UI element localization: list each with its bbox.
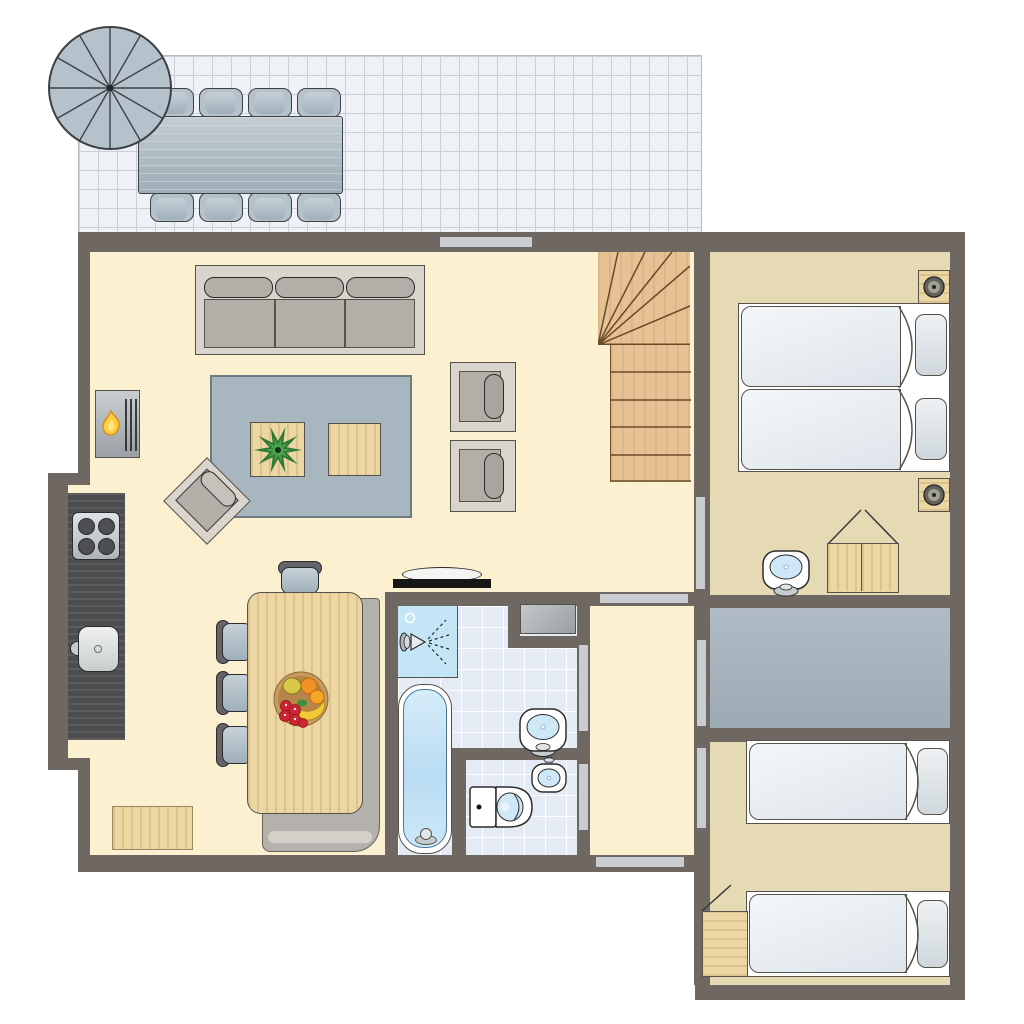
sink-drain: [94, 645, 102, 653]
door-hall-exterior: [596, 857, 684, 867]
wardrobe: [827, 543, 899, 593]
door-hall-to-toilet: [579, 764, 588, 830]
stairs-tread-lines: [611, 345, 691, 482]
washing-machine: [520, 604, 576, 634]
sofa-back-cushion: [275, 277, 344, 298]
toilet: [468, 781, 536, 833]
sofa: [195, 265, 425, 355]
bedroom-1-washbasin: [760, 549, 812, 597]
wardrobe-door: [828, 544, 862, 591]
side-table: [328, 423, 381, 476]
bedroom-2-cabinet: [702, 911, 748, 977]
shower-head-icon: [398, 606, 456, 676]
fireplace-vent-line: [130, 399, 132, 451]
utility-room-floor: [710, 608, 950, 728]
wall-bathroom-left: [385, 592, 398, 872]
single-bed: [746, 740, 950, 824]
wall-bedroom1-bottom: [695, 595, 950, 608]
dining-chair: [199, 88, 243, 118]
chair-seat: [303, 198, 334, 220]
plant: [253, 425, 303, 475]
sofa-back-cushion: [346, 277, 415, 298]
fireplace: [95, 390, 140, 458]
dining-chair: [248, 192, 292, 222]
wall-bump-bottom: [48, 758, 90, 770]
stairs-winder-section: [598, 252, 690, 345]
chair-seat: [303, 92, 334, 114]
stairs-straight-section: [610, 345, 690, 482]
chair-seat: [205, 92, 236, 114]
dining-chair: [199, 192, 243, 222]
dining-chair: [248, 88, 292, 118]
door-hall-to-bathroom: [579, 645, 588, 731]
duvet-fold-line: [747, 741, 951, 825]
door-hall-to-bedroom-2: [697, 748, 706, 828]
sofa-seat-divider: [274, 299, 276, 348]
door-hall-top: [600, 594, 688, 603]
wall-washer-niche-horizontal: [508, 636, 590, 648]
door-hall-to-utility: [697, 640, 706, 726]
sofa-back-cushion: [204, 277, 273, 298]
hallway-floor: [590, 606, 694, 855]
bathtub: [398, 684, 452, 854]
stairs-winder-lines: [598, 252, 690, 345]
shower: [398, 606, 458, 678]
kitchen-floor-mat: [112, 806, 193, 850]
chair-seat: [254, 92, 285, 114]
floor-plan: [0, 0, 1024, 1024]
side-table-with-plant: [250, 422, 305, 477]
single-bed: [746, 891, 950, 977]
dining-chair: [297, 192, 341, 222]
armchair-roll: [484, 374, 504, 419]
armchair-roll: [484, 453, 504, 499]
double-bed: [738, 303, 950, 472]
tv-stand: [393, 579, 491, 588]
bar-stool-seat: [281, 567, 319, 594]
bathtub-water: [403, 689, 447, 848]
wall-toilet-vertical: [452, 748, 466, 872]
parasol: [44, 22, 176, 154]
armchair: [450, 440, 516, 512]
sofa-seat-divider: [344, 299, 346, 348]
wall-bump-top: [48, 473, 90, 485]
wall-bump-left: [48, 473, 68, 770]
burner: [98, 518, 115, 535]
nightstand: [918, 270, 950, 304]
wardrobe-door: [862, 544, 897, 591]
wall-mid-vertical: [694, 252, 710, 985]
armchair: [450, 362, 516, 432]
chair-seat: [205, 198, 236, 220]
bathroom-washbasin: [517, 707, 569, 757]
burner: [78, 518, 95, 535]
door-swing-line: [698, 880, 734, 914]
toilet-corner-washbasin: [530, 757, 568, 795]
bathtub-drain-dome: [420, 828, 432, 840]
stove: [72, 512, 120, 560]
lamp-icon: [919, 479, 949, 511]
burner: [98, 538, 115, 555]
wall-bottom-right: [695, 985, 965, 1000]
window-top-wall: [440, 237, 532, 247]
duvet-fold-line: [747, 892, 951, 978]
burner: [78, 538, 95, 555]
chair-seat: [254, 198, 285, 220]
duvet-fold-lines: [739, 304, 951, 473]
wall-left-upper: [78, 232, 90, 485]
chair-seat: [156, 198, 187, 220]
fireplace-vent-line: [135, 399, 137, 451]
fruit-bowl: [272, 670, 330, 728]
dining-chair: [150, 192, 194, 222]
wall-right: [950, 232, 965, 995]
door-living-to-bedroom-1: [696, 497, 705, 589]
fireplace-vent-line: [125, 399, 127, 451]
lamp-icon: [919, 271, 949, 303]
island-base-lip: [268, 831, 372, 843]
flame-icon: [100, 409, 122, 437]
dining-chair: [297, 88, 341, 118]
sofa-seat: [204, 299, 415, 348]
nightstand: [918, 478, 950, 512]
wardrobe-open-door-lines: [820, 506, 906, 546]
kitchen-sink: [78, 626, 119, 672]
